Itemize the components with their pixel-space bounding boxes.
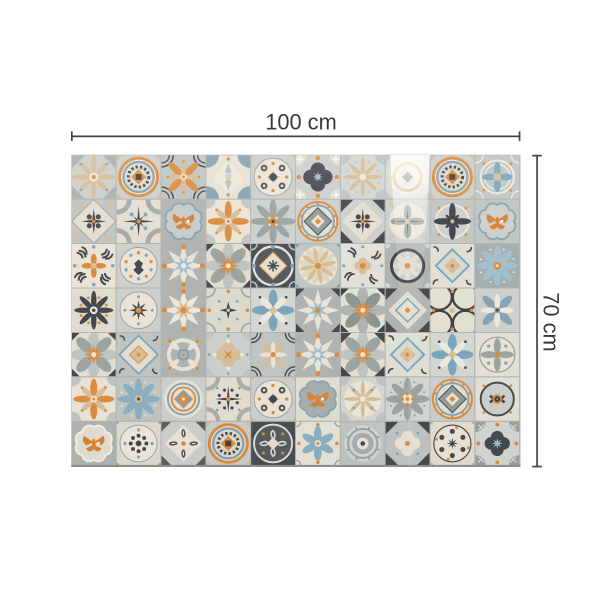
svg-text:100 cm: 100 cm [265, 110, 336, 135]
svg-text:70 cm: 70 cm [538, 292, 563, 351]
